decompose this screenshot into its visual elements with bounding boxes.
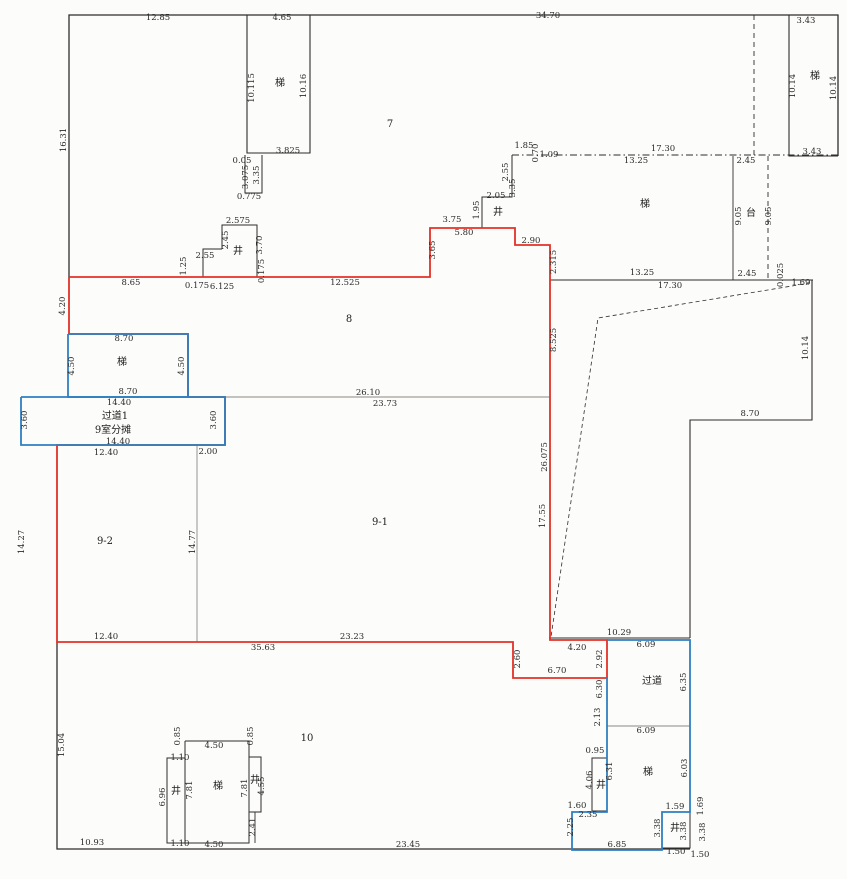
- dimension-label: 10.14: [802, 336, 811, 360]
- dimension-label: 34.70: [536, 12, 560, 21]
- dimension-label: 1.59: [666, 803, 685, 812]
- dimension-label: 2.13: [594, 708, 603, 727]
- dimension-label: 2.41: [249, 818, 258, 837]
- dimension-label: 2.575: [226, 217, 250, 226]
- dimension-label: 12.40: [94, 633, 118, 642]
- dimension-label: 8.70: [119, 388, 138, 397]
- dimension-label: 8.70: [115, 335, 134, 344]
- dimension-label: 23.45: [396, 841, 420, 850]
- dimension-label: 4.50: [205, 742, 224, 751]
- dimension-label: 2.35: [579, 811, 598, 820]
- dimension-label: 8.525: [550, 328, 559, 352]
- dimension-label: 3.38: [680, 822, 689, 841]
- dimension-label: 0.85: [247, 727, 256, 746]
- dimension-label: 3.075: [242, 165, 251, 189]
- room-label: 井: [493, 208, 503, 218]
- dimension-label: 2.00: [199, 448, 218, 457]
- room-label: 8: [346, 315, 352, 325]
- room-label: 过道1: [102, 412, 128, 422]
- dimension-label: 3.60: [21, 411, 30, 430]
- dimension-label: 0.025: [777, 263, 786, 287]
- dimension-label: 4.50: [205, 841, 224, 850]
- dimension-label: 9.05: [765, 207, 774, 226]
- dimension-label: 14.27: [18, 530, 27, 554]
- dimension-label: 12.85: [146, 14, 170, 23]
- dimension-label: 2.90: [522, 237, 541, 246]
- dimension-label: 15.04: [58, 733, 67, 757]
- dimension-label: 1.50: [667, 848, 686, 857]
- dimension-label: 4.50: [178, 357, 187, 376]
- dimension-label: 1.25: [180, 257, 189, 276]
- dimension-label: 23.23: [340, 633, 364, 642]
- dimension-label: 10.93: [80, 839, 104, 848]
- dimension-label: 6.31: [606, 762, 615, 781]
- dimension-label: 0.85: [174, 727, 183, 746]
- dimension-label: 16.31: [60, 128, 69, 152]
- dimension-label: 10.14: [830, 76, 839, 100]
- room-label: 9-1: [372, 518, 388, 528]
- room-label: 梯: [640, 200, 650, 210]
- dimension-label: 1.69: [697, 797, 706, 816]
- dimension-label: 1.69: [792, 279, 811, 288]
- dimension-label: 10.29: [607, 629, 631, 638]
- dimension-label: 8.70: [741, 410, 760, 419]
- room-label: 井: [171, 787, 181, 797]
- dimension-label: 2.55: [196, 252, 215, 261]
- dimension-label: 0.775: [237, 193, 261, 202]
- dimension-label: 17.30: [651, 145, 675, 154]
- dimension-label: 9.05: [735, 207, 744, 226]
- dimension-label: 10.16: [300, 74, 309, 98]
- dimension-label: 1.95: [473, 201, 482, 220]
- dimension-label: 3.38: [699, 823, 708, 842]
- dimension-label: 3.35: [509, 179, 518, 198]
- room-label: 梯: [810, 72, 820, 82]
- dimension-label: 6.96: [159, 788, 168, 807]
- dimension-label: 2.92: [596, 650, 605, 669]
- dimension-label: 26.10: [356, 389, 380, 398]
- dimension-label: 23.73: [373, 400, 397, 409]
- dimension-label: 14.77: [189, 530, 198, 554]
- dimension-label: 1.10: [171, 840, 190, 849]
- dimension-label: 10.115: [248, 73, 257, 103]
- dimension-label: 3.35: [253, 166, 262, 185]
- dimension-label: 0.95: [586, 747, 605, 756]
- dimension-label: 4.65: [273, 14, 292, 23]
- dimension-label: 0.175: [185, 282, 209, 291]
- dimension-label: 12.525: [330, 279, 360, 288]
- dimension-label: 3.60: [210, 411, 219, 430]
- dimension-label: 17.30: [658, 282, 682, 291]
- dimension-label: 0.175: [258, 259, 267, 283]
- room-label: 梯: [213, 782, 223, 792]
- dimension-label: 7.81: [241, 779, 250, 798]
- dimension-label: 2.315: [550, 250, 559, 274]
- room-label: 台: [746, 209, 756, 219]
- room-label: 过道: [642, 677, 662, 687]
- dimension-label: 2.45: [738, 270, 757, 279]
- dimension-label: 17.55: [539, 504, 548, 528]
- label-layer: 12.854.6534.703.4316.3110.115梯10.163.825…: [0, 0, 847, 879]
- dimension-label: 6.70: [548, 667, 567, 676]
- dimension-label: 8.65: [122, 279, 141, 288]
- dimension-label: 6.30: [596, 680, 605, 699]
- dimension-label: 4.55: [258, 777, 267, 796]
- dimension-label: 2.05: [487, 192, 506, 201]
- dimension-label: 6.09: [637, 641, 656, 650]
- dimension-label: 10.14: [789, 74, 798, 98]
- room-label: 10: [301, 734, 314, 744]
- dimension-label: 12.40: [94, 449, 118, 458]
- dimension-label: 3.825: [276, 147, 300, 156]
- dimension-label: 35.63: [251, 644, 275, 653]
- dimension-label: 6.09: [637, 727, 656, 736]
- dimension-label: 2.45: [222, 231, 231, 250]
- dimension-label: 3.75: [443, 216, 462, 225]
- room-label: 梯: [275, 79, 285, 89]
- dimension-label: 2.60: [514, 650, 523, 669]
- dimension-label: 6.03: [681, 759, 690, 778]
- dimension-label: 14.40: [107, 399, 131, 408]
- dimension-label: 4.50: [68, 357, 77, 376]
- floor-plan-canvas: 12.854.6534.703.4316.3110.115梯10.163.825…: [0, 0, 847, 879]
- dimension-label: 1.10: [171, 754, 190, 763]
- dimension-label: 13.25: [624, 157, 648, 166]
- dimension-label: 2.25: [567, 818, 576, 837]
- dimension-label: 3.70: [256, 236, 265, 255]
- dimension-label: 4.20: [59, 297, 68, 316]
- dimension-label: 26.075: [541, 442, 550, 472]
- dimension-label: 3.43: [803, 148, 822, 157]
- dimension-label: 7.81: [186, 781, 195, 800]
- room-label: 9-2: [97, 537, 113, 547]
- dimension-label: 3.65: [429, 241, 438, 260]
- room-label: 7: [387, 120, 393, 130]
- dimension-label: 4.06: [586, 771, 595, 790]
- room-label: 井: [596, 781, 606, 791]
- dimension-label: 13.25: [630, 269, 654, 278]
- dimension-label: 14.40: [106, 438, 130, 447]
- dimension-label: 3.43: [797, 17, 816, 26]
- dimension-label: 6.85: [608, 841, 627, 850]
- dimension-label: 1.09: [540, 151, 559, 160]
- room-label: 梯: [117, 358, 127, 368]
- dimension-label: 6.125: [210, 283, 234, 292]
- room-label: 梯: [643, 768, 653, 778]
- dimension-label: 2.45: [737, 157, 756, 166]
- dimension-label: 6.35: [680, 673, 689, 692]
- dimension-label: 4.20: [568, 644, 587, 653]
- dimension-label: 3.38: [654, 819, 663, 838]
- room-label: 井: [233, 247, 243, 257]
- dimension-label: 5.80: [455, 229, 474, 238]
- dimension-label: 1.50: [691, 851, 710, 860]
- room-label: 9室分摊: [95, 426, 131, 436]
